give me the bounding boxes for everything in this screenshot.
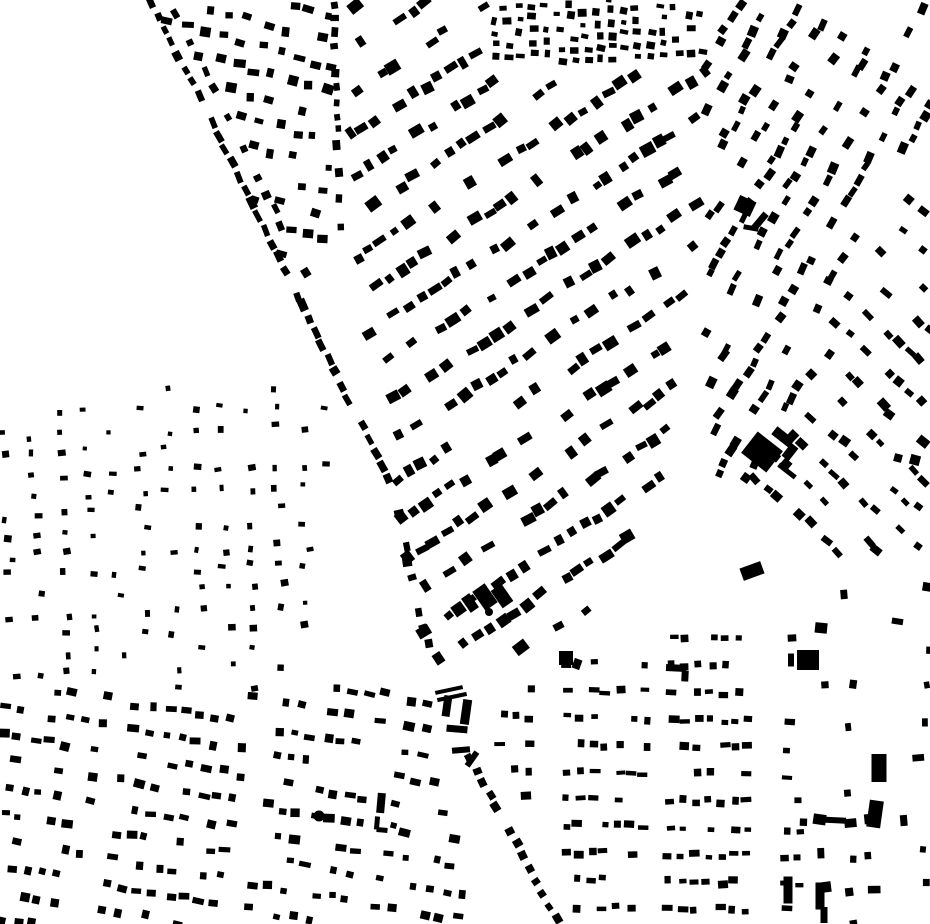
building <box>379 688 390 697</box>
building <box>481 541 496 553</box>
building <box>34 789 41 795</box>
building <box>796 829 804 835</box>
building <box>880 71 891 82</box>
building <box>432 488 443 499</box>
building <box>607 5 613 13</box>
building <box>62 530 68 535</box>
building <box>92 669 97 674</box>
building <box>791 110 804 124</box>
building <box>302 465 307 471</box>
building <box>167 762 178 769</box>
building <box>905 85 917 98</box>
building <box>494 742 505 746</box>
building <box>680 634 688 642</box>
building <box>781 402 789 412</box>
building <box>917 2 929 16</box>
building <box>194 569 201 574</box>
building <box>351 85 364 98</box>
building <box>788 634 797 641</box>
district-northeast-east <box>748 194 930 559</box>
building <box>172 920 182 924</box>
building <box>552 621 564 632</box>
building <box>648 266 662 281</box>
building <box>602 87 616 99</box>
building <box>766 48 777 61</box>
building <box>827 52 840 65</box>
building <box>283 778 294 786</box>
building <box>302 229 313 239</box>
building <box>522 266 537 280</box>
building <box>515 28 523 36</box>
building <box>567 363 580 376</box>
building <box>21 786 30 796</box>
building <box>564 445 578 459</box>
building <box>669 715 680 723</box>
building <box>901 497 910 506</box>
building <box>808 195 820 207</box>
building <box>420 910 431 920</box>
building <box>591 714 598 719</box>
building <box>562 849 571 856</box>
building <box>355 35 367 48</box>
building <box>419 579 432 593</box>
building <box>597 54 603 62</box>
building <box>303 755 310 764</box>
street-building <box>208 117 217 130</box>
building <box>664 876 670 884</box>
building <box>731 120 741 132</box>
building <box>31 895 40 904</box>
building <box>33 548 41 555</box>
building <box>219 31 228 38</box>
building <box>919 110 930 123</box>
building <box>916 435 930 449</box>
building <box>403 464 416 478</box>
building <box>493 40 500 46</box>
building <box>742 909 749 915</box>
building <box>692 800 700 807</box>
building <box>214 467 221 472</box>
building <box>470 378 483 391</box>
building <box>828 317 840 329</box>
building <box>519 597 535 613</box>
building <box>602 335 619 351</box>
building <box>783 748 790 754</box>
building <box>315 786 324 794</box>
street-building <box>330 15 339 21</box>
building <box>592 8 600 16</box>
street-building <box>517 850 528 861</box>
building <box>141 551 145 556</box>
building <box>87 772 97 782</box>
building <box>181 707 192 714</box>
landmark-building <box>872 754 887 782</box>
building <box>578 9 587 17</box>
building <box>707 768 714 776</box>
building <box>441 526 455 537</box>
building <box>62 630 70 635</box>
building <box>117 774 124 782</box>
street-building <box>531 877 541 887</box>
building <box>694 769 702 777</box>
street-building <box>234 171 244 184</box>
building <box>87 508 94 512</box>
building <box>264 21 276 31</box>
building <box>106 430 110 434</box>
building <box>326 165 332 171</box>
street-building <box>329 365 341 376</box>
building <box>858 497 868 508</box>
building <box>689 879 698 884</box>
building <box>922 718 928 726</box>
building <box>817 848 824 859</box>
street-building <box>219 143 229 155</box>
building <box>710 662 717 669</box>
building <box>728 225 738 236</box>
building <box>574 875 580 882</box>
building <box>641 662 647 668</box>
building <box>624 232 642 249</box>
building <box>792 3 803 16</box>
building <box>278 503 285 508</box>
building <box>405 256 418 269</box>
building <box>635 54 641 59</box>
building <box>395 181 409 194</box>
building <box>524 303 540 318</box>
building <box>57 410 62 416</box>
building <box>570 36 579 42</box>
building <box>139 452 146 457</box>
building <box>304 81 312 90</box>
building <box>784 827 791 834</box>
building <box>615 797 623 802</box>
building <box>327 708 339 716</box>
building <box>410 419 424 431</box>
building <box>430 70 443 82</box>
building <box>16 706 24 714</box>
building <box>611 75 627 91</box>
building <box>667 81 683 97</box>
building <box>600 743 607 750</box>
building <box>276 119 286 129</box>
building <box>351 170 364 182</box>
building <box>717 138 728 150</box>
building <box>195 711 204 719</box>
building <box>398 827 411 838</box>
building <box>444 863 454 870</box>
building <box>624 285 635 297</box>
building <box>60 568 66 575</box>
building <box>743 366 755 379</box>
building <box>768 99 779 111</box>
building <box>774 145 785 159</box>
building <box>54 690 61 696</box>
street-building <box>504 826 515 836</box>
street-building <box>181 66 190 76</box>
building <box>402 855 408 861</box>
building <box>543 26 549 32</box>
building <box>529 40 537 46</box>
building <box>512 712 519 719</box>
building <box>689 850 700 857</box>
building <box>791 122 801 133</box>
building <box>300 621 309 629</box>
street-building <box>161 25 170 35</box>
building <box>678 906 689 912</box>
building <box>440 441 452 453</box>
building <box>860 345 872 357</box>
building <box>891 618 903 626</box>
building <box>662 15 667 20</box>
building <box>558 58 567 66</box>
street-chain-avenue-low-south <box>464 753 564 924</box>
building <box>5 617 13 623</box>
building <box>837 31 848 42</box>
building <box>350 848 361 854</box>
building <box>13 673 21 679</box>
building <box>80 407 86 411</box>
building <box>83 446 88 450</box>
building <box>127 831 138 839</box>
building <box>705 689 713 694</box>
building <box>426 885 435 893</box>
building <box>747 25 759 38</box>
building <box>32 615 39 621</box>
building <box>248 140 259 150</box>
building <box>2 517 7 524</box>
building <box>782 905 793 911</box>
building <box>621 20 627 25</box>
building <box>864 852 871 860</box>
building <box>491 17 498 26</box>
building <box>147 889 156 896</box>
building <box>644 717 651 725</box>
building <box>333 684 340 692</box>
building <box>578 739 585 747</box>
building <box>346 0 364 15</box>
building <box>637 772 647 777</box>
building <box>392 13 407 26</box>
building <box>429 777 440 787</box>
building <box>446 229 461 244</box>
building <box>618 161 629 172</box>
building <box>782 775 792 780</box>
street-building <box>407 573 417 581</box>
landmark-building <box>559 651 573 665</box>
building <box>554 12 560 16</box>
building <box>330 866 338 874</box>
building <box>813 303 823 313</box>
building <box>555 241 570 256</box>
building <box>627 905 635 912</box>
building <box>688 197 704 212</box>
building <box>880 287 893 299</box>
building <box>601 251 616 266</box>
building <box>466 345 479 356</box>
building <box>7 865 17 873</box>
building <box>609 43 617 48</box>
building <box>273 913 281 920</box>
building <box>250 605 255 611</box>
building <box>545 80 557 90</box>
building <box>528 685 535 692</box>
building <box>150 783 160 792</box>
street-building <box>166 36 175 46</box>
building <box>504 54 513 60</box>
building <box>61 819 73 829</box>
building <box>580 23 585 28</box>
building <box>433 855 441 863</box>
building <box>814 622 827 634</box>
building <box>506 274 521 288</box>
building <box>564 824 571 830</box>
building <box>275 833 282 840</box>
building <box>782 178 793 190</box>
building <box>483 622 496 635</box>
building <box>150 702 156 711</box>
building <box>193 428 199 434</box>
building <box>774 248 784 261</box>
building <box>219 485 223 492</box>
building <box>437 25 449 35</box>
street-building <box>477 777 488 788</box>
building <box>694 660 701 667</box>
building <box>91 534 96 538</box>
building <box>827 429 838 440</box>
building <box>390 800 400 808</box>
building <box>244 903 253 910</box>
building <box>142 629 149 635</box>
building <box>492 53 499 60</box>
building <box>662 853 671 859</box>
building <box>291 730 298 736</box>
street-building <box>512 837 524 848</box>
building <box>544 37 550 44</box>
building <box>718 880 728 888</box>
building <box>277 603 284 611</box>
building <box>848 186 858 198</box>
building <box>178 893 189 900</box>
building <box>849 679 857 689</box>
building <box>708 827 715 832</box>
building <box>823 174 833 186</box>
building <box>639 141 657 158</box>
building <box>357 796 367 803</box>
building <box>788 61 799 72</box>
building <box>527 12 536 19</box>
building <box>666 208 682 223</box>
street-building <box>331 69 339 78</box>
building <box>63 548 71 556</box>
building <box>228 793 236 802</box>
building <box>656 4 664 9</box>
building <box>590 741 599 748</box>
landmark-building <box>681 670 689 681</box>
building <box>837 252 849 264</box>
building <box>720 742 731 748</box>
building <box>344 708 355 718</box>
building <box>412 456 427 471</box>
building <box>596 44 606 52</box>
building <box>859 107 870 117</box>
building <box>824 349 835 360</box>
building <box>537 545 552 557</box>
building <box>528 382 541 395</box>
building <box>482 121 497 133</box>
street-building <box>304 314 314 324</box>
district-north-strip <box>491 0 708 65</box>
building <box>721 720 728 725</box>
building <box>775 311 787 323</box>
building <box>304 734 315 741</box>
building <box>43 736 55 743</box>
building <box>179 733 187 741</box>
building <box>206 819 217 829</box>
building <box>63 667 70 674</box>
building <box>271 485 277 492</box>
landmark-building <box>782 443 799 461</box>
building <box>444 312 461 328</box>
building <box>539 291 554 305</box>
street-building <box>552 912 564 924</box>
building <box>317 32 329 42</box>
building <box>584 304 600 319</box>
building <box>754 239 763 250</box>
building <box>301 426 308 433</box>
building <box>233 59 246 68</box>
building <box>791 379 804 392</box>
building <box>679 742 689 750</box>
building <box>731 719 738 724</box>
building <box>660 52 668 57</box>
building <box>647 102 657 112</box>
building <box>711 634 718 640</box>
building <box>531 50 539 57</box>
building <box>161 487 169 492</box>
building <box>729 851 738 856</box>
building <box>10 755 22 763</box>
building <box>724 71 733 80</box>
building <box>926 647 930 654</box>
street-building <box>336 381 347 393</box>
building <box>394 771 405 779</box>
building <box>626 771 637 776</box>
street-building <box>213 130 225 144</box>
building <box>820 497 830 507</box>
building <box>692 745 700 752</box>
building <box>499 6 506 11</box>
building <box>903 194 915 206</box>
building <box>588 795 598 801</box>
building <box>585 47 593 53</box>
building <box>449 266 461 279</box>
street-chain-avenue-east-upper <box>170 8 312 278</box>
building <box>223 549 230 556</box>
building <box>231 661 236 666</box>
building <box>767 211 780 224</box>
building <box>310 208 321 219</box>
building <box>168 631 175 638</box>
building <box>556 27 564 33</box>
building <box>247 882 258 890</box>
building <box>277 664 284 671</box>
building <box>24 866 33 876</box>
building <box>374 718 386 724</box>
building <box>599 691 610 696</box>
building <box>476 336 492 351</box>
building <box>133 778 146 789</box>
building <box>130 703 139 711</box>
